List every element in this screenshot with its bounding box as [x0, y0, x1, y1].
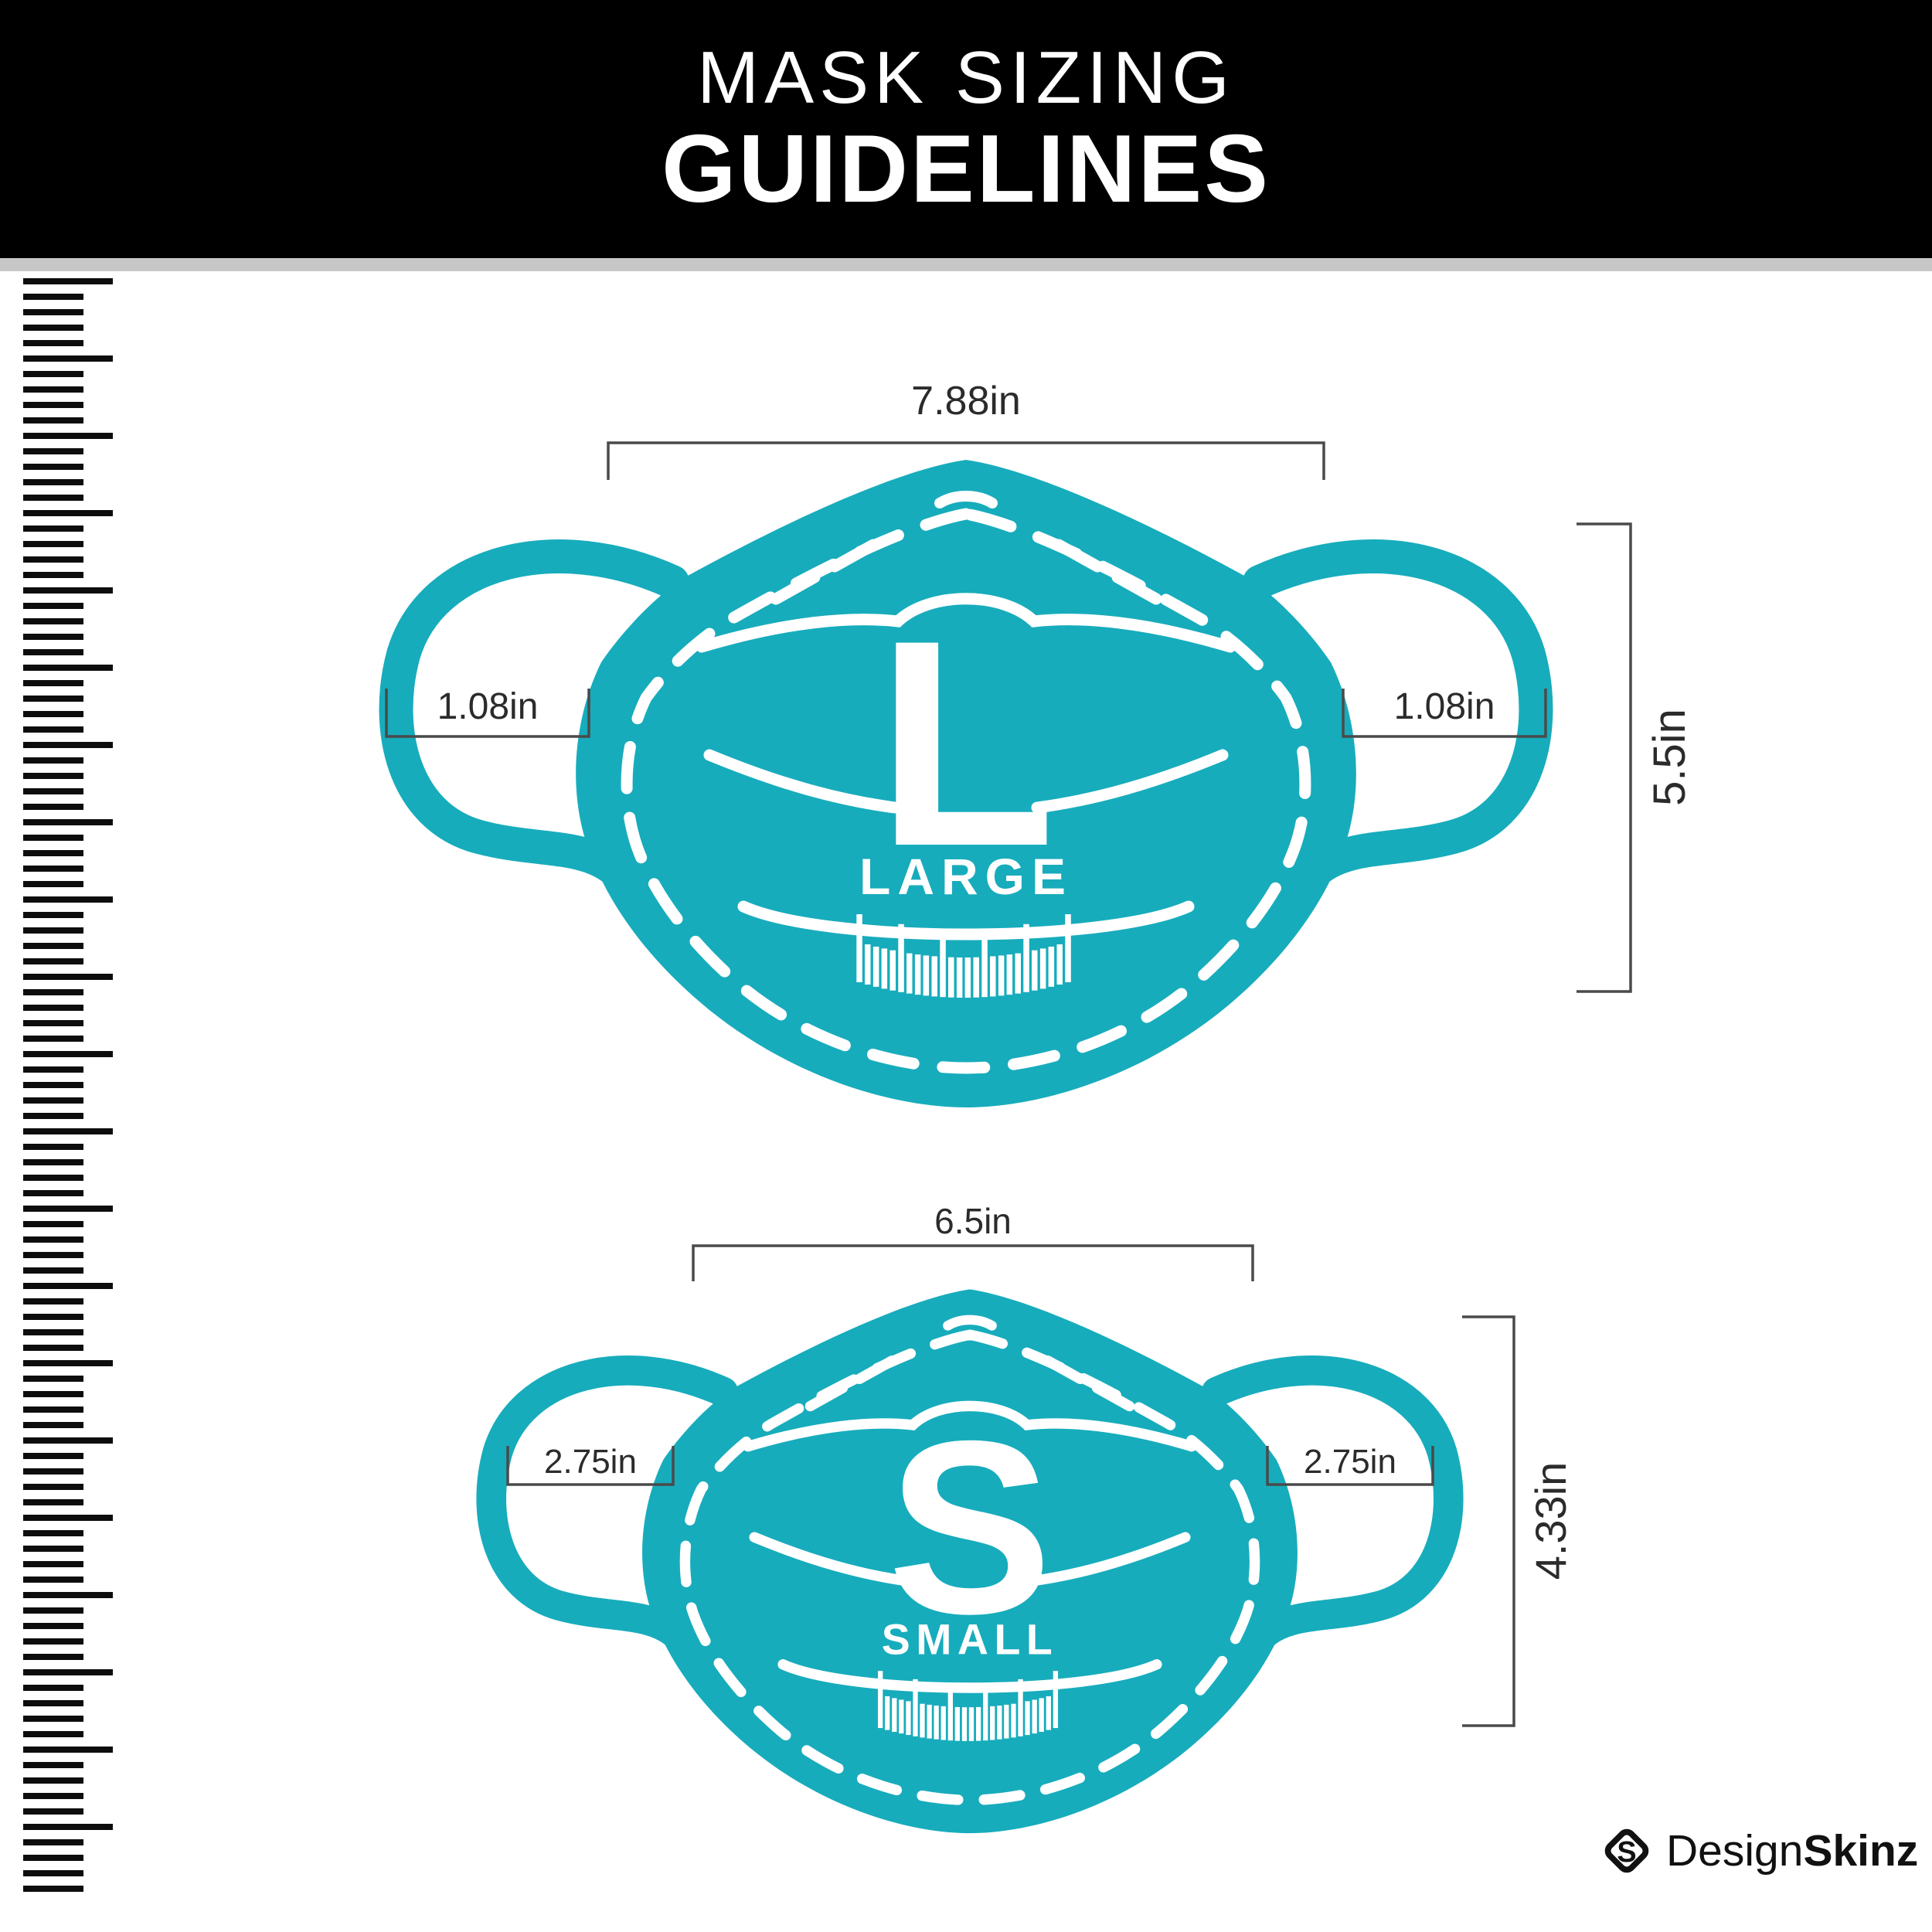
dim-label-small-ear-left: 2.75in — [544, 1443, 637, 1481]
dim-label-large-height: 5.5in — [1645, 709, 1695, 806]
brand-name-regular: Design — [1666, 1826, 1803, 1876]
designskinz-diamond-s-icon: S — [1594, 1818, 1660, 1884]
svg-text:S: S — [1617, 1836, 1636, 1869]
dim-label-large-ear-right: 1.08in — [1394, 686, 1495, 727]
dim-label-small-width: 6.5in — [934, 1201, 1012, 1241]
dim-label-large-width: 7.88in — [911, 379, 1021, 423]
dim-bracket-large-height — [1577, 524, 1631, 992]
dim-label-large-ear-left: 1.08in — [437, 686, 539, 727]
dim-bracket-large-width — [608, 443, 1324, 480]
brand-name: DesignSkinz — [1666, 1825, 1918, 1876]
brand-name-bold: Skinz — [1803, 1826, 1918, 1876]
dim-bracket-small-height — [1462, 1317, 1514, 1726]
dimension-annotations: 7.88in 1.08in 1.08in 5.5in 6.5in 2.75in … — [0, 0, 1932, 1932]
dim-label-small-height: 4.33in — [1526, 1462, 1575, 1580]
page: { "header": { "title_line1": "MASK SIZIN… — [0, 0, 1932, 1932]
brand-logo: S DesignSkinz — [1594, 1818, 1918, 1884]
dim-label-small-ear-right: 2.75in — [1304, 1443, 1396, 1481]
dim-bracket-small-width — [693, 1246, 1253, 1281]
